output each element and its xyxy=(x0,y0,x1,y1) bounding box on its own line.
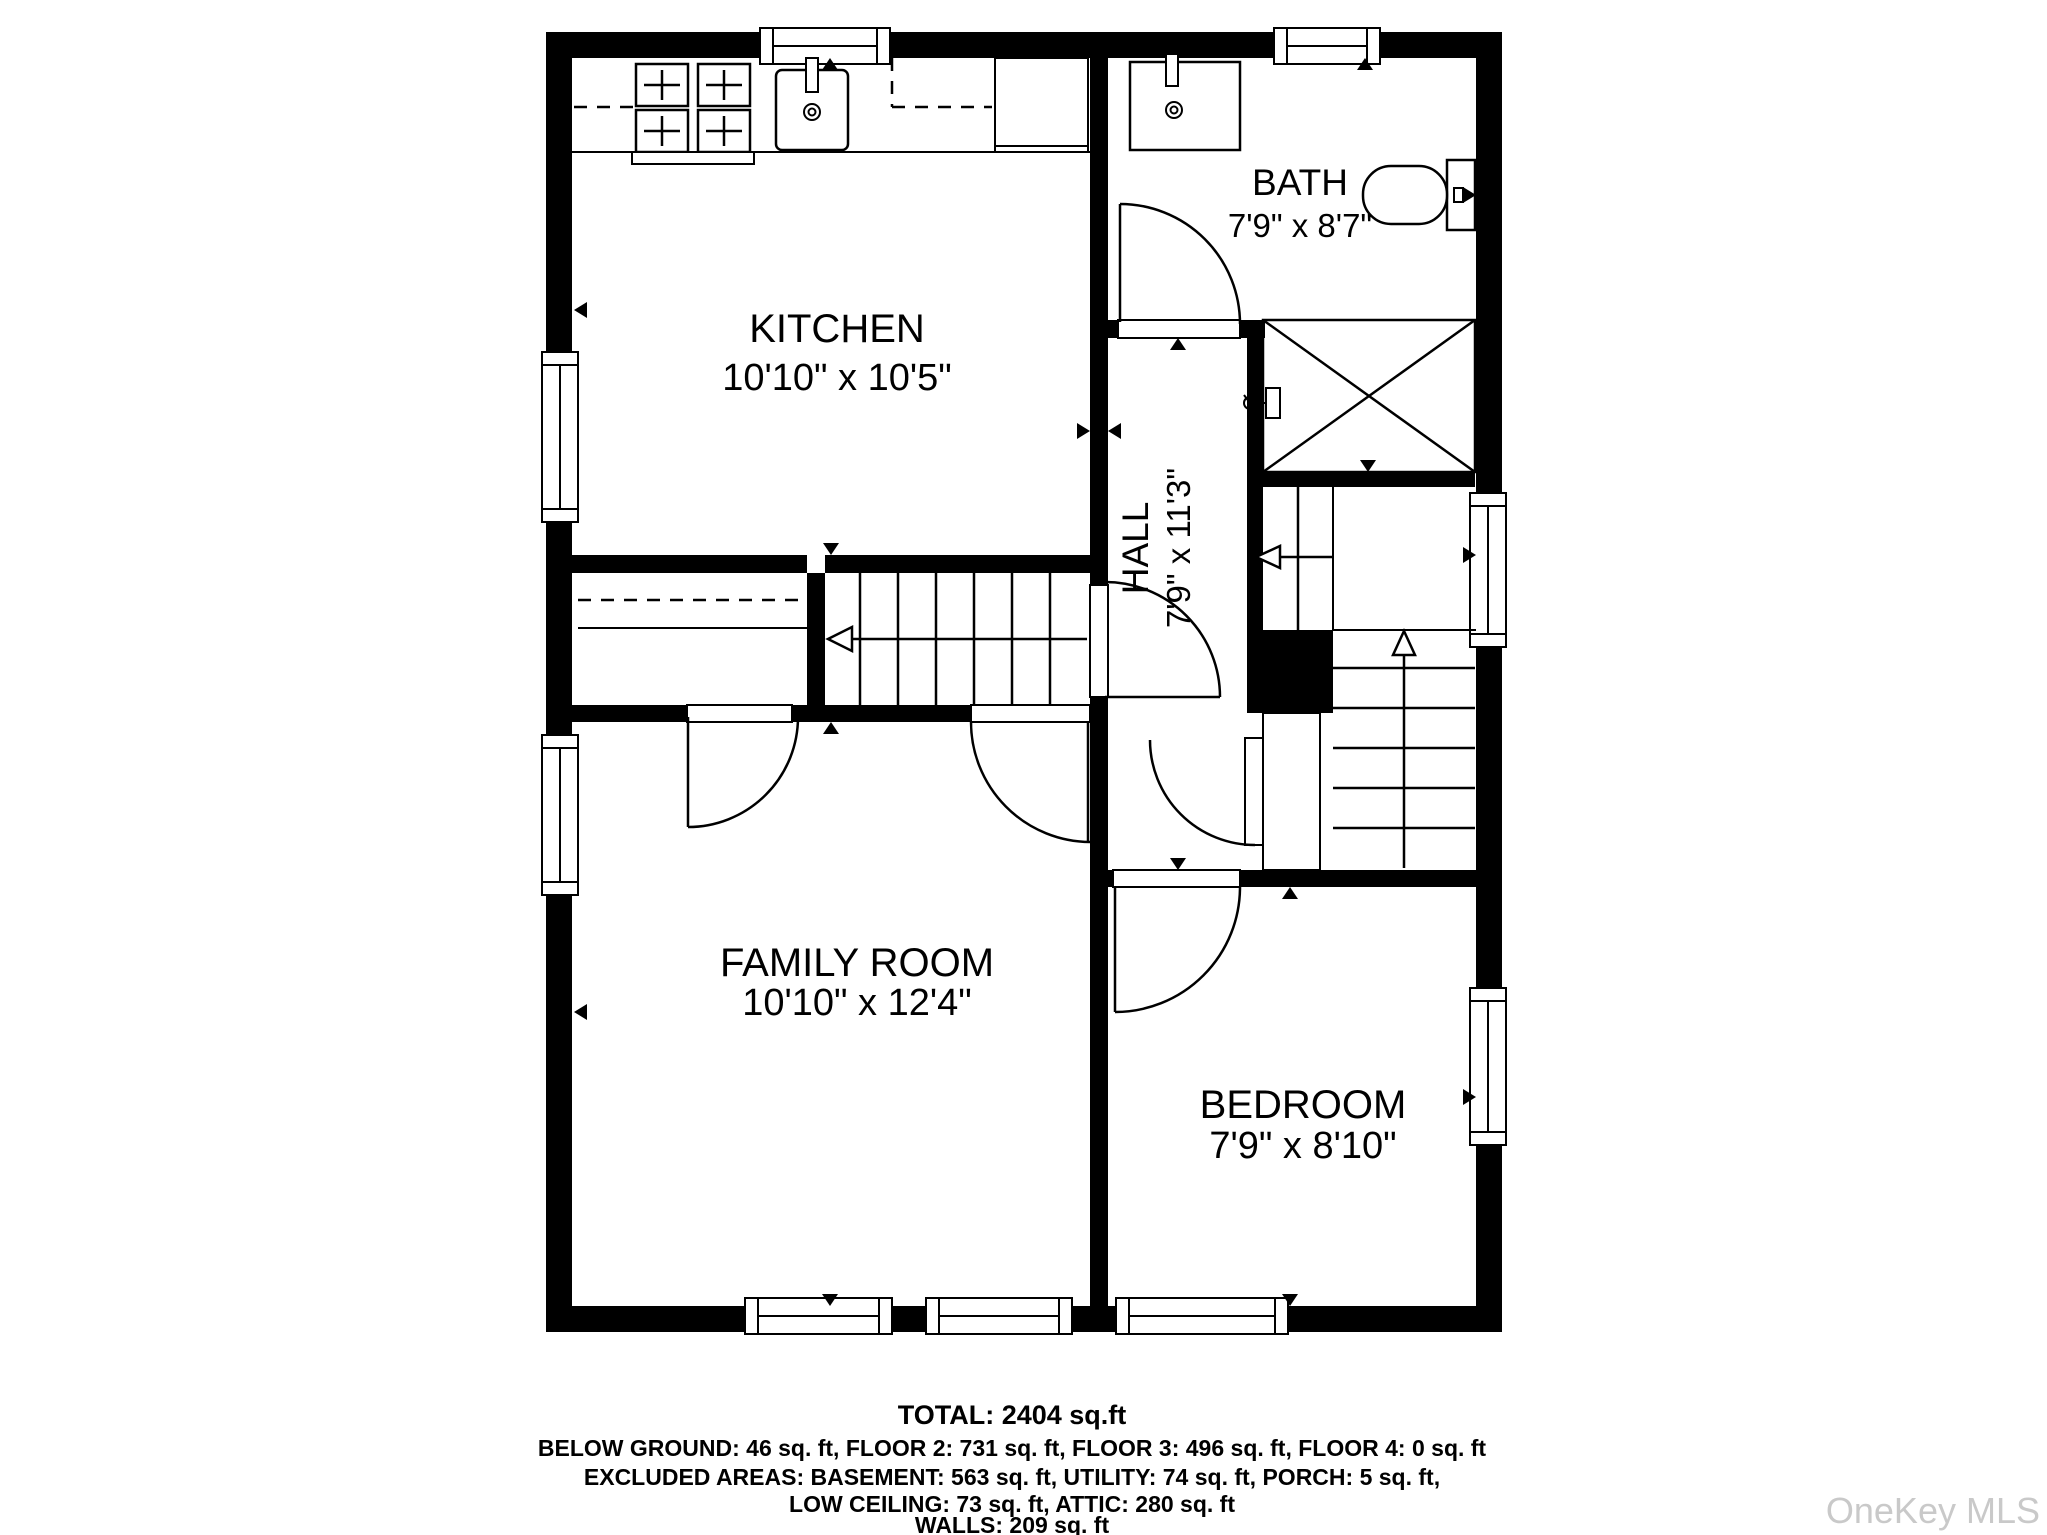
floorplan-page: KITCHEN 10'10" x 10'5" BATH 7'9" x 8'7" … xyxy=(0,0,2047,1535)
excluded-areas-text: EXCLUDED AREAS: BASEMENT: 563 sq. ft, UT… xyxy=(584,1464,1440,1490)
kitchen-sink-icon xyxy=(776,58,848,150)
bedroom-bottom-window xyxy=(1116,1298,1288,1334)
family-bottom-window-2 xyxy=(926,1298,1072,1334)
family-room-dims: 10'10" x 12'4" xyxy=(742,982,972,1024)
bedroom-right-window xyxy=(1470,988,1506,1145)
family-room-label: FAMILY ROOM xyxy=(720,941,994,985)
area-summary: TOTAL: 2404 sq.ft BELOW GROUND: 46 sq. f… xyxy=(538,1400,1487,1535)
family-bottom-window-1 xyxy=(745,1298,892,1334)
bath-top-window xyxy=(1274,28,1380,64)
bathroom-sink-icon xyxy=(1130,54,1240,150)
bath-dims: 7'9" x 8'7" xyxy=(1228,207,1372,244)
kitchen-fixtures xyxy=(572,58,1090,164)
bedroom-label: BEDROOM xyxy=(1200,1083,1407,1127)
floors-area-text: BELOW GROUND: 46 sq. ft, FLOOR 2: 731 sq… xyxy=(538,1435,1487,1461)
kitchen-dims: 10'10" x 10'5" xyxy=(722,357,952,399)
family-left-window xyxy=(542,735,578,895)
kitchen-label: KITCHEN xyxy=(749,307,925,351)
refrigerator-icon xyxy=(995,58,1088,152)
landing-right-window xyxy=(1470,493,1506,647)
kitchen-top-window xyxy=(760,28,890,64)
walls-area-text: WALLS: 209 sq. ft xyxy=(915,1512,1110,1535)
total-area-text: TOTAL: 2404 sq.ft xyxy=(898,1400,1127,1430)
hall-label: HALL xyxy=(1115,502,1156,595)
kitchen-left-window xyxy=(542,352,578,522)
toilet-icon xyxy=(1363,160,1475,230)
bath-label: BATH xyxy=(1252,162,1348,203)
floorplan-drawing: KITCHEN 10'10" x 10'5" BATH 7'9" x 8'7" … xyxy=(0,0,2047,1535)
under-stair-closet xyxy=(1263,713,1320,870)
bedroom-dims: 7'9" x 8'10" xyxy=(1209,1125,1396,1167)
watermark-onekey-mls: OneKey MLS xyxy=(1826,1490,2040,1531)
hall-dims: 7'9" x 11'3" xyxy=(1160,468,1197,628)
